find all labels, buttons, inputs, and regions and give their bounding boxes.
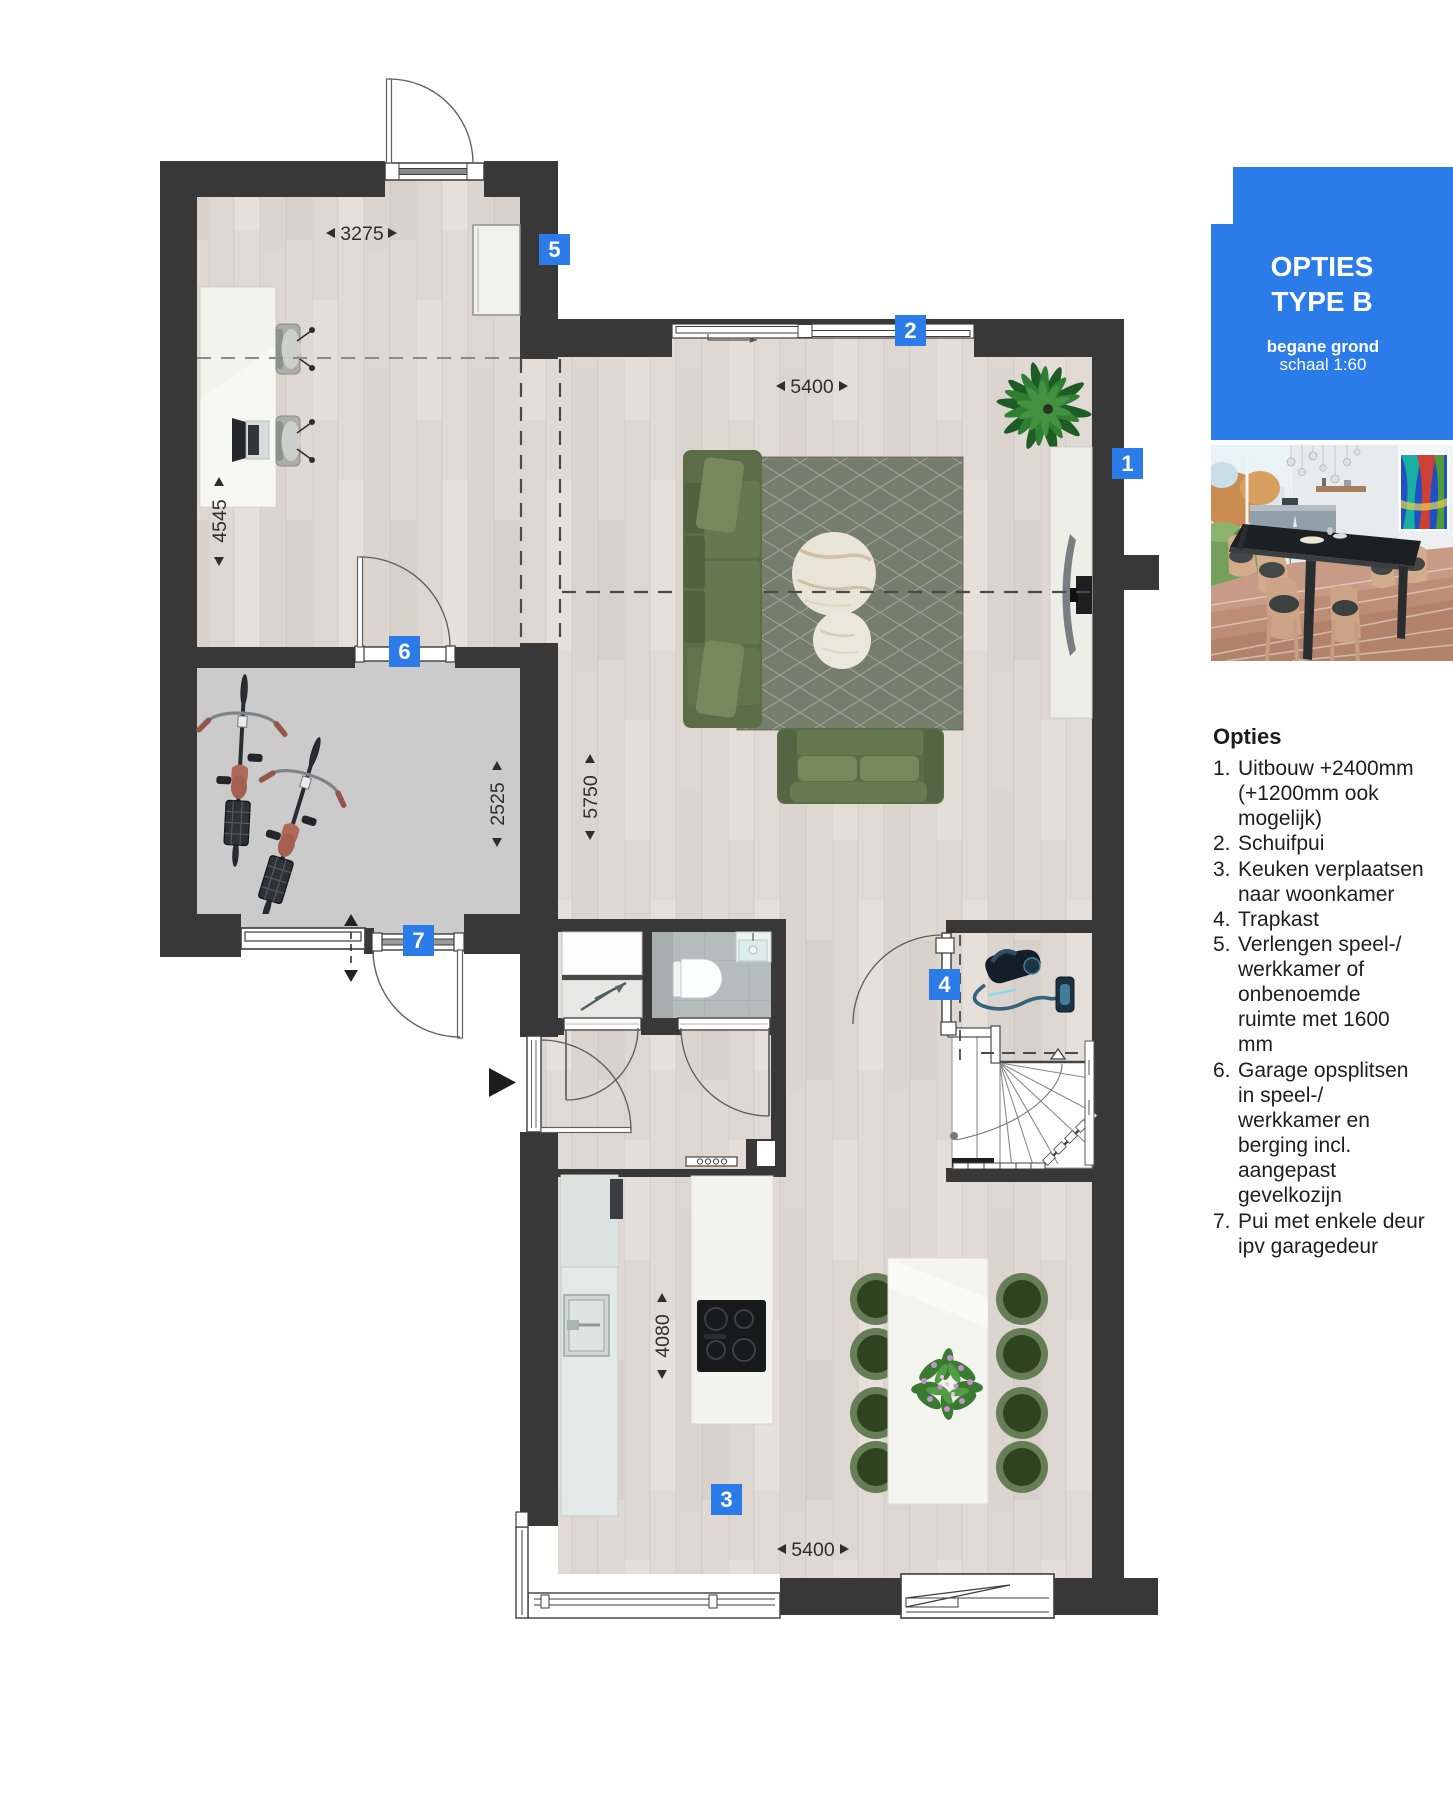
svg-text:5750: 5750 [580, 775, 602, 819]
svg-text:(+1200mm ook: (+1200mm ook [1238, 782, 1379, 805]
svg-text:naar woonkamer: naar woonkamer [1238, 883, 1394, 906]
svg-text:5400: 5400 [790, 376, 834, 398]
svg-text:in speel-/: in speel-/ [1238, 1084, 1323, 1107]
svg-text:onbenoemde: onbenoemde [1238, 983, 1361, 1006]
svg-text:1: 1 [1121, 451, 1133, 476]
svg-text:gevelkozijn: gevelkozijn [1238, 1184, 1342, 1207]
svg-text:mm: mm [1238, 1033, 1273, 1056]
svg-text:werkkamer of: werkkamer of [1237, 958, 1364, 981]
svg-text:TYPE B: TYPE B [1271, 286, 1372, 317]
svg-text:mogelijk): mogelijk) [1238, 807, 1322, 830]
svg-text:3: 3 [720, 1487, 732, 1512]
svg-text:Trapkast: Trapkast [1238, 908, 1319, 931]
svg-text:ruimte met 1600: ruimte met 1600 [1238, 1008, 1390, 1031]
svg-text:2.: 2. [1213, 832, 1231, 855]
svg-text:aangepast: aangepast [1238, 1159, 1336, 1182]
svg-text:2: 2 [904, 318, 916, 343]
svg-text:Verlengen speel-/: Verlengen speel-/ [1238, 933, 1402, 956]
svg-text:Uitbouw +2400mm: Uitbouw +2400mm [1238, 757, 1414, 780]
svg-text:Schuifpui: Schuifpui [1238, 832, 1324, 855]
svg-text:begane grond: begane grond [1267, 337, 1379, 356]
svg-text:6: 6 [398, 639, 410, 664]
svg-text:5.: 5. [1213, 933, 1231, 956]
svg-text:7.: 7. [1213, 1210, 1231, 1233]
svg-text:7: 7 [412, 928, 424, 953]
svg-text:4545: 4545 [209, 499, 231, 543]
svg-text:1.: 1. [1213, 757, 1231, 780]
svg-text:Keuken verplaatsen: Keuken verplaatsen [1238, 858, 1424, 881]
svg-text:2525: 2525 [487, 782, 509, 826]
svg-text:werkkamer en: werkkamer en [1237, 1109, 1370, 1132]
svg-text:ipv garagedeur: ipv garagedeur [1238, 1235, 1378, 1258]
svg-text:OPTIES: OPTIES [1271, 251, 1374, 282]
svg-text:3275: 3275 [340, 223, 384, 245]
svg-text:schaal 1:60: schaal 1:60 [1280, 355, 1367, 374]
svg-text:4.: 4. [1213, 908, 1231, 931]
svg-text:5400: 5400 [791, 1539, 835, 1561]
svg-text:4: 4 [938, 972, 951, 997]
svg-text:5: 5 [548, 237, 560, 262]
svg-text:4080: 4080 [652, 1314, 674, 1358]
svg-text:6.: 6. [1213, 1059, 1231, 1082]
svg-text:berging incl.: berging incl. [1238, 1134, 1351, 1157]
svg-text:Pui met enkele deur: Pui met enkele deur [1238, 1210, 1425, 1233]
svg-text:Opties: Opties [1213, 724, 1281, 749]
svg-text:Garage opsplitsen: Garage opsplitsen [1238, 1059, 1408, 1082]
svg-text:3.: 3. [1213, 858, 1231, 881]
